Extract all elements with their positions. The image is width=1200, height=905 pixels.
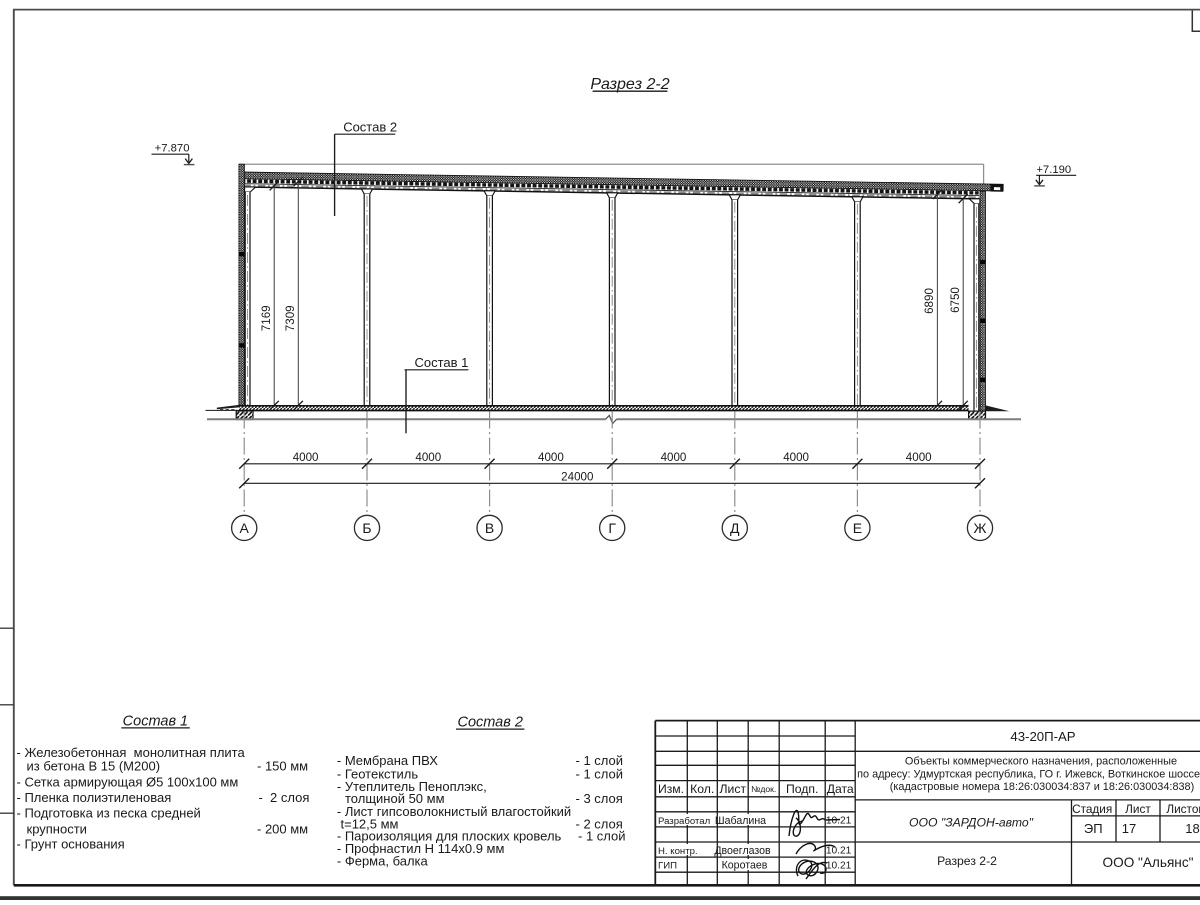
svg-text:- 1 слой: - 1 слой xyxy=(576,766,624,781)
svg-text:- 2 слоя: - 2 слоя xyxy=(259,790,310,805)
svg-text:Шабалина: Шабалина xyxy=(715,815,766,827)
svg-text:7169: 7169 xyxy=(260,305,273,331)
svg-text:Двоеглазов: Двоеглазов xyxy=(714,845,771,857)
svg-text:Дата: Дата xyxy=(827,782,854,796)
svg-text:Состав 1: Состав 1 xyxy=(123,713,188,729)
svg-text:по адресу: Удмуртская республи: по адресу: Удмуртская республика, ГО г. … xyxy=(857,768,1200,780)
svg-text:из бетона В 15 (М200): из бетона В 15 (М200) xyxy=(27,758,161,773)
svg-text:10.21: 10.21 xyxy=(826,860,852,871)
svg-text:Состав 1: Состав 1 xyxy=(415,355,469,370)
svg-text:Е: Е xyxy=(853,520,862,536)
svg-text:ЭП: ЭП xyxy=(1084,821,1103,836)
svg-text:- Грунт основания: - Грунт основания xyxy=(17,837,125,852)
svg-text:Коротаев: Коротаев xyxy=(722,860,768,872)
svg-text:7309: 7309 xyxy=(284,305,297,331)
svg-text:17: 17 xyxy=(1122,821,1136,836)
svg-text:- 3 слоя: - 3 слоя xyxy=(576,791,623,806)
svg-text:- 200 мм: - 200 мм xyxy=(257,821,308,836)
svg-text:- 150 мм: - 150 мм xyxy=(257,758,308,773)
svg-text:- Подготовка из песка средней: - Подготовка из песка средней xyxy=(17,806,201,821)
svg-text:4000: 4000 xyxy=(415,451,441,464)
svg-text:+7.190: +7.190 xyxy=(1036,164,1071,176)
svg-text:ООО "Альянс": ООО "Альянс" xyxy=(1103,855,1194,870)
svg-text:Г: Г xyxy=(608,520,616,536)
svg-text:Разрез 2-2: Разрез 2-2 xyxy=(590,76,669,93)
svg-text:Лист: Лист xyxy=(720,782,747,796)
svg-text:Б: Б xyxy=(362,520,371,536)
svg-text:Состав 2: Состав 2 xyxy=(343,120,397,135)
svg-text:43-20П-АР: 43-20П-АР xyxy=(1010,729,1075,744)
svg-text:А: А xyxy=(240,520,250,536)
svg-text:6890: 6890 xyxy=(923,288,936,314)
svg-text:В: В xyxy=(485,520,494,536)
svg-text:18: 18 xyxy=(1185,821,1199,836)
svg-text:Подп.: Подп. xyxy=(786,782,818,796)
svg-text:Разрез 2-2: Разрез 2-2 xyxy=(937,854,997,868)
svg-text:Объекты коммерческого назначен: Объекты коммерческого назначения, распол… xyxy=(905,755,1177,767)
svg-text:- 1 слой: - 1 слой xyxy=(578,829,626,844)
svg-text:+7.870: +7.870 xyxy=(155,143,190,155)
svg-text:10.21: 10.21 xyxy=(826,845,852,856)
svg-text:4000: 4000 xyxy=(293,451,319,464)
svg-text:10.21: 10.21 xyxy=(826,815,852,826)
svg-text:- Пленка полиэтиленовая: - Пленка полиэтиленовая xyxy=(17,790,172,805)
svg-text:- Ферма, балка: - Ферма, балка xyxy=(337,854,429,869)
svg-text:4000: 4000 xyxy=(783,451,809,464)
svg-text:Н. контр.: Н. контр. xyxy=(658,846,698,857)
svg-text:6750: 6750 xyxy=(949,287,962,313)
svg-text:№док.: №док. xyxy=(751,784,776,794)
svg-text:Листов: Листов xyxy=(1166,802,1200,816)
svg-text:крупности: крупности xyxy=(27,821,87,836)
svg-text:Разработал: Разработал xyxy=(658,816,710,827)
svg-text:Д: Д xyxy=(730,520,740,536)
svg-text:Стадия: Стадия xyxy=(1072,802,1112,816)
svg-text:Изм.: Изм. xyxy=(658,782,684,796)
svg-text:4000: 4000 xyxy=(661,451,687,464)
svg-text:24000: 24000 xyxy=(561,470,593,483)
svg-text:4000: 4000 xyxy=(906,451,932,464)
svg-text:Состав 2: Состав 2 xyxy=(457,715,522,731)
svg-text:ГИП: ГИП xyxy=(658,861,677,872)
svg-text:(кадастровые номера 18:26:0300: (кадастровые номера 18:26:030034:837 и 1… xyxy=(890,781,1195,793)
svg-text:Кол.: Кол. xyxy=(690,782,714,796)
svg-text:4000: 4000 xyxy=(538,451,564,464)
svg-text:- Сетка армирующая Ø5 100х100: - Сетка армирующая Ø5 100х100 мм xyxy=(17,775,239,790)
svg-text:ООО "ЗАРДОН-авто": ООО "ЗАРДОН-авто" xyxy=(909,816,1034,830)
svg-text:Лист: Лист xyxy=(1125,802,1151,816)
svg-text:Ж: Ж xyxy=(974,520,987,536)
